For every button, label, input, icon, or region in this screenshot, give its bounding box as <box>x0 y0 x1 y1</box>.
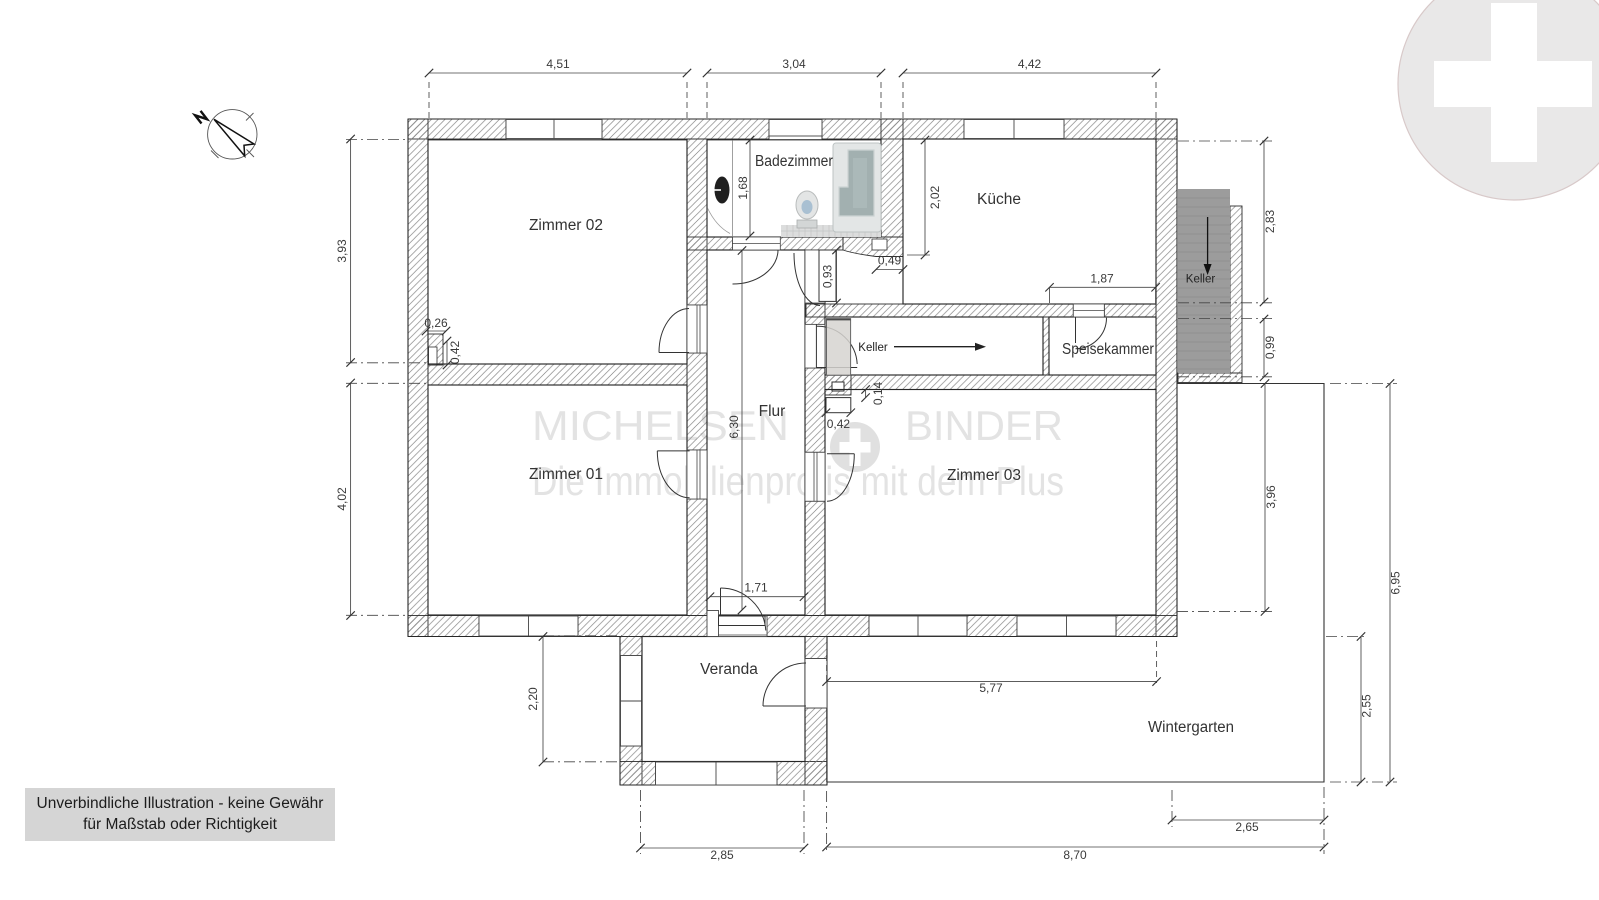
svg-text:6,30: 6,30 <box>727 415 741 439</box>
svg-text:Zimmer 02: Zimmer 02 <box>529 217 603 234</box>
svg-text:3,04: 3,04 <box>782 57 806 71</box>
svg-text:Veranda: Veranda <box>700 661 758 678</box>
svg-text:2,65: 2,65 <box>1235 820 1259 834</box>
svg-text:8,70: 8,70 <box>1063 848 1087 862</box>
svg-text:2,85: 2,85 <box>710 848 734 862</box>
svg-text:Badezimmer: Badezimmer <box>755 153 833 170</box>
svg-text:3,93: 3,93 <box>335 239 349 263</box>
svg-text:5,77: 5,77 <box>979 681 1003 695</box>
svg-text:0,14: 0,14 <box>871 381 885 405</box>
svg-text:6,95: 6,95 <box>1389 571 1403 595</box>
svg-text:2,55: 2,55 <box>1360 694 1374 718</box>
svg-text:1,68: 1,68 <box>736 176 750 200</box>
svg-text:4,42: 4,42 <box>1018 57 1042 71</box>
svg-text:Zimmer 03: Zimmer 03 <box>947 467 1021 484</box>
svg-text:0,99: 0,99 <box>1263 335 1277 359</box>
svg-text:Speisekammer: Speisekammer <box>1062 341 1154 358</box>
svg-text:1,87: 1,87 <box>1090 272 1114 286</box>
svg-text:Keller: Keller <box>858 342 888 354</box>
svg-text:Flur: Flur <box>759 403 786 420</box>
svg-text:2,83: 2,83 <box>1263 209 1277 233</box>
svg-text:MICHELSEN: MICHELSEN <box>532 402 789 449</box>
svg-text:2,20: 2,20 <box>526 687 540 711</box>
svg-text:1,71: 1,71 <box>744 581 768 595</box>
svg-text:0,42: 0,42 <box>827 417 851 431</box>
svg-text:3,96: 3,96 <box>1264 485 1278 509</box>
svg-text:für Maßstab oder Richtigkeit: für Maßstab oder Richtigkeit <box>83 816 278 833</box>
svg-text:0,26: 0,26 <box>424 316 448 330</box>
svg-text:Küche: Küche <box>977 191 1021 208</box>
svg-text:Wintergarten: Wintergarten <box>1148 719 1234 736</box>
svg-text:BINDER: BINDER <box>905 402 1063 449</box>
svg-text:Zimmer 01: Zimmer 01 <box>529 466 603 483</box>
svg-text:Unverbindliche Illustration -: Unverbindliche Illustration - keine Gewä… <box>37 795 324 812</box>
svg-text:4,51: 4,51 <box>546 57 570 71</box>
svg-text:0,49: 0,49 <box>878 254 902 268</box>
svg-text:0,42: 0,42 <box>448 340 462 364</box>
svg-text:0,93: 0,93 <box>821 264 835 288</box>
svg-text:2,02: 2,02 <box>928 185 942 209</box>
svg-text:4,02: 4,02 <box>335 487 349 511</box>
svg-text:Keller: Keller <box>1186 274 1216 286</box>
